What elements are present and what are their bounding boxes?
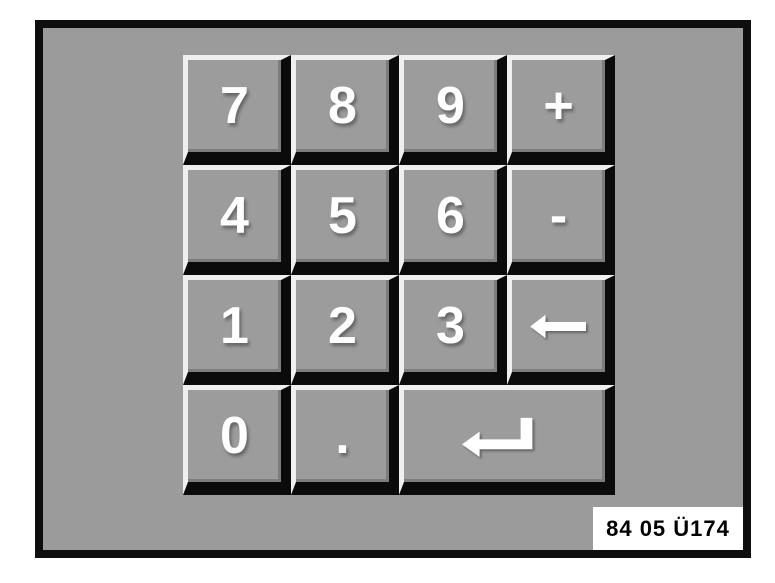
minus-icon: - <box>550 190 567 242</box>
key-7-label: 7 <box>220 80 249 132</box>
key-enter[interactable] <box>399 385 615 495</box>
key-5[interactable]: 5 <box>291 165 399 275</box>
key-3-label: 3 <box>436 300 465 352</box>
key-3[interactable]: 3 <box>399 275 507 385</box>
plus-icon: + <box>543 80 573 132</box>
key-decimal[interactable]: . <box>291 385 399 495</box>
key-minus[interactable]: - <box>507 165 615 275</box>
key-0[interactable]: 0 <box>183 385 291 495</box>
key-9-label: 9 <box>436 80 465 132</box>
key-8-label: 8 <box>328 80 357 132</box>
key-9[interactable]: 9 <box>399 55 507 165</box>
screen-frame: 7 8 9 + 4 5 6 - <box>35 20 751 558</box>
key-plus[interactable]: + <box>507 55 615 165</box>
key-6[interactable]: 6 <box>399 165 507 275</box>
figure-code-text: 84 05 Ü174 <box>606 516 730 542</box>
key-8[interactable]: 8 <box>291 55 399 165</box>
key-2[interactable]: 2 <box>291 275 399 385</box>
key-4[interactable]: 4 <box>183 165 291 275</box>
key-5-label: 5 <box>328 190 357 242</box>
backspace-arrow-icon <box>530 313 588 340</box>
key-1[interactable]: 1 <box>183 275 291 385</box>
numeric-keypad: 7 8 9 + 4 5 6 - <box>183 55 615 495</box>
key-6-label: 6 <box>436 190 465 242</box>
figure-code-label: 84 05 Ü174 <box>593 507 743 550</box>
key-2-label: 2 <box>328 300 357 352</box>
decimal-point-label: . <box>335 410 349 462</box>
key-backspace[interactable] <box>507 275 615 385</box>
page-background: 7 8 9 + 4 5 6 - <box>0 0 775 583</box>
key-4-label: 4 <box>220 190 249 242</box>
key-7[interactable]: 7 <box>183 55 291 165</box>
enter-return-icon <box>462 414 548 459</box>
key-1-label: 1 <box>220 300 249 352</box>
key-0-label: 0 <box>220 410 249 462</box>
